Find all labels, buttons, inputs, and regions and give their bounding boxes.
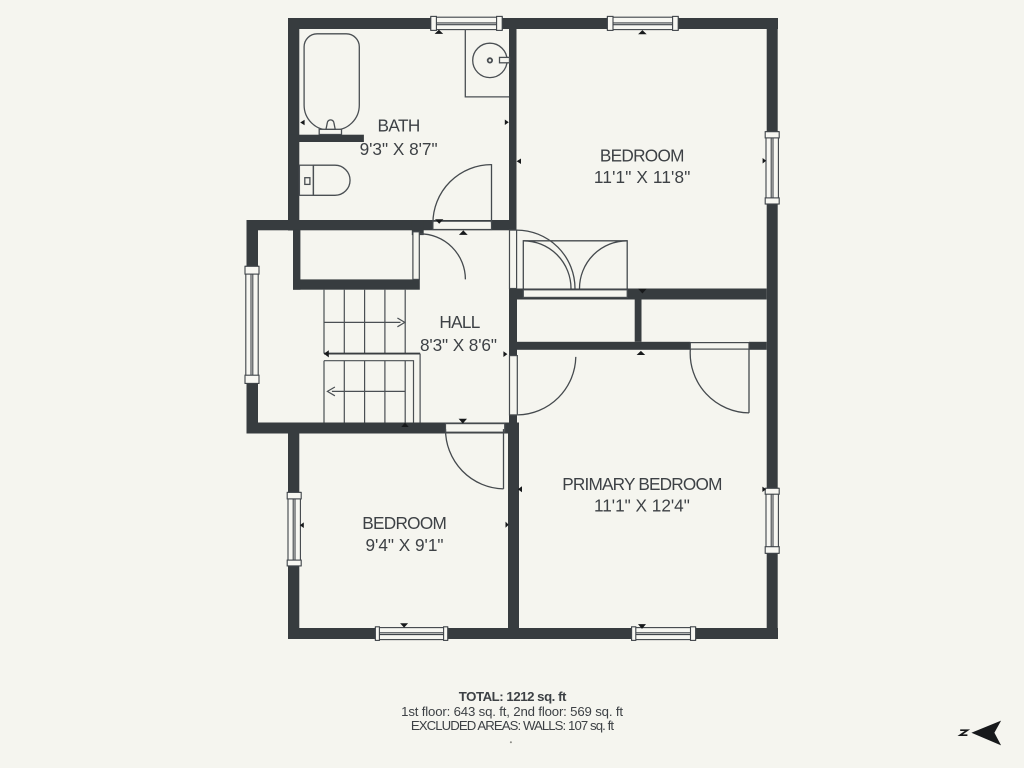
svg-text:11'1" X 11'8": 11'1" X 11'8" — [594, 167, 691, 187]
svg-text:PRIMARY BEDROOM: PRIMARY BEDROOM — [562, 474, 721, 494]
svg-text:BEDROOM: BEDROOM — [600, 146, 684, 166]
svg-text:HALL: HALL — [439, 312, 479, 332]
svg-text:8'3" X 8'6": 8'3" X 8'6" — [420, 335, 497, 355]
svg-text:9'3" X 8'7": 9'3" X 8'7" — [360, 139, 438, 159]
svg-text:1st floor: 643 sq. ft, 2nd flo: 1st floor: 643 sq. ft, 2nd floor: 569 sq… — [401, 704, 623, 719]
svg-text:BATH: BATH — [378, 116, 420, 136]
svg-text:TOTAL: 1212 sq. ft: TOTAL: 1212 sq. ft — [459, 689, 567, 704]
svg-text:BEDROOM: BEDROOM — [362, 513, 446, 533]
svg-text:EXCLUDED AREAS: WALLS: 107 sq.: EXCLUDED AREAS: WALLS: 107 sq. ft — [411, 718, 614, 733]
svg-text:9'4" X 9'1": 9'4" X 9'1" — [365, 535, 443, 555]
svg-text:11'1" X 12'4": 11'1" X 12'4" — [594, 495, 690, 515]
